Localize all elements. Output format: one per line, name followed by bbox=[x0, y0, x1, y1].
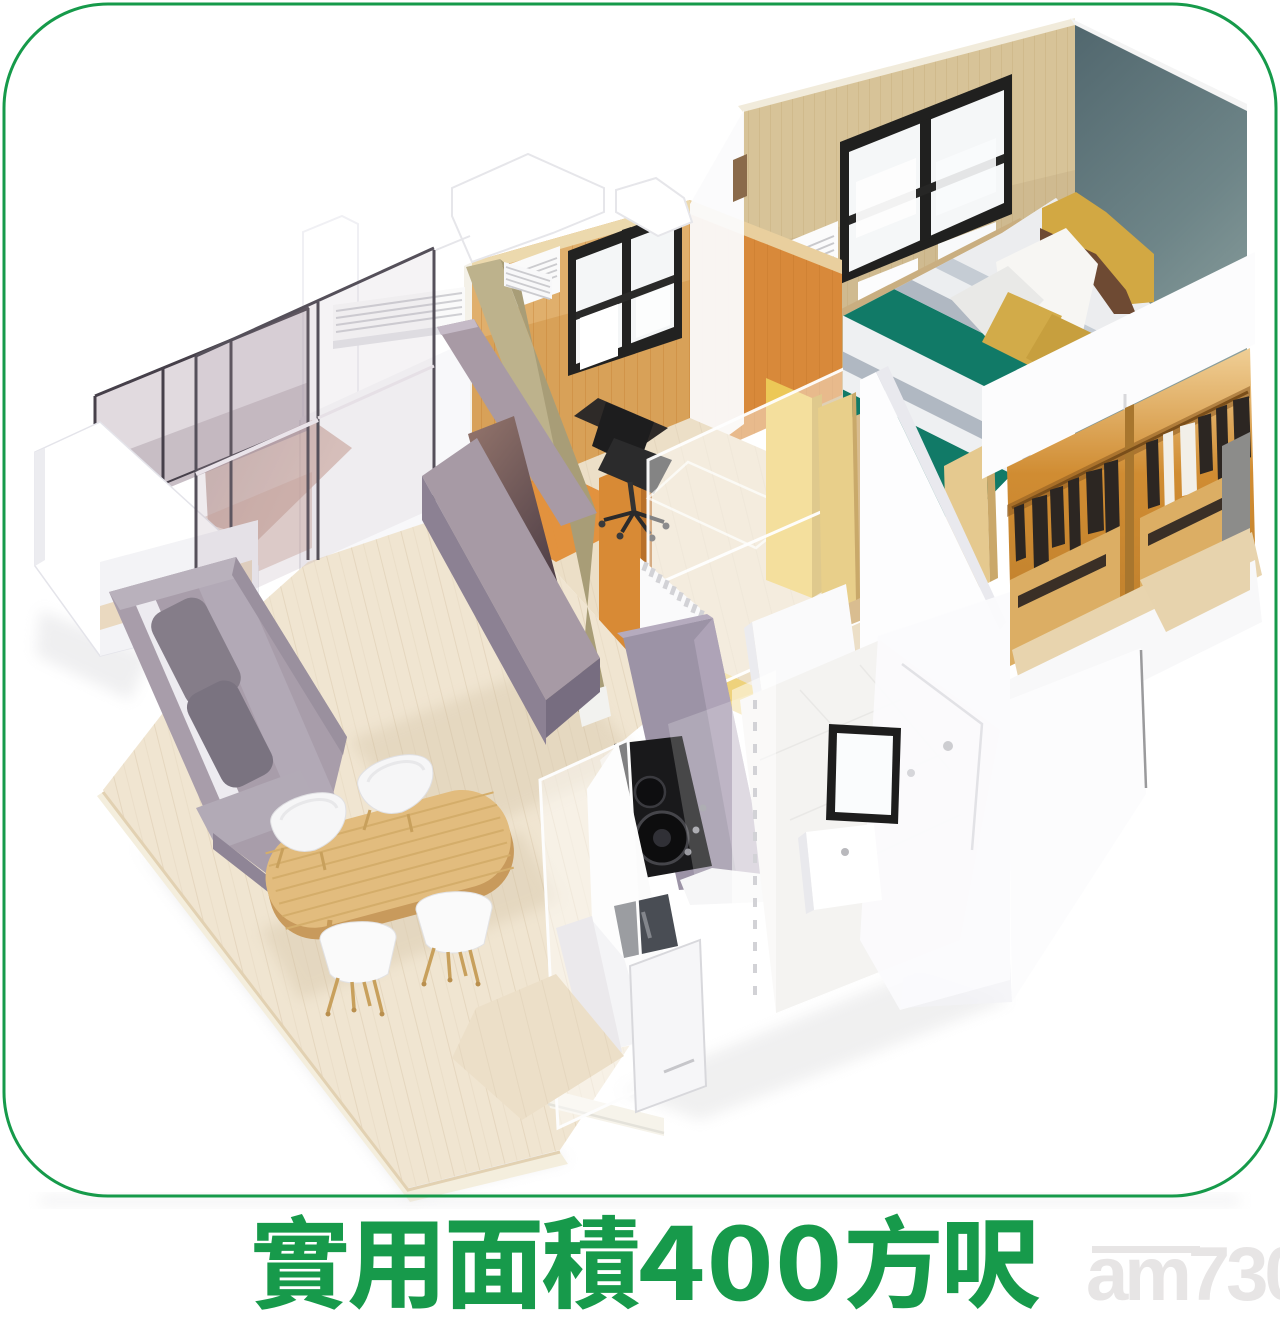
svg-text:am730: am730 bbox=[1086, 1232, 1280, 1317]
